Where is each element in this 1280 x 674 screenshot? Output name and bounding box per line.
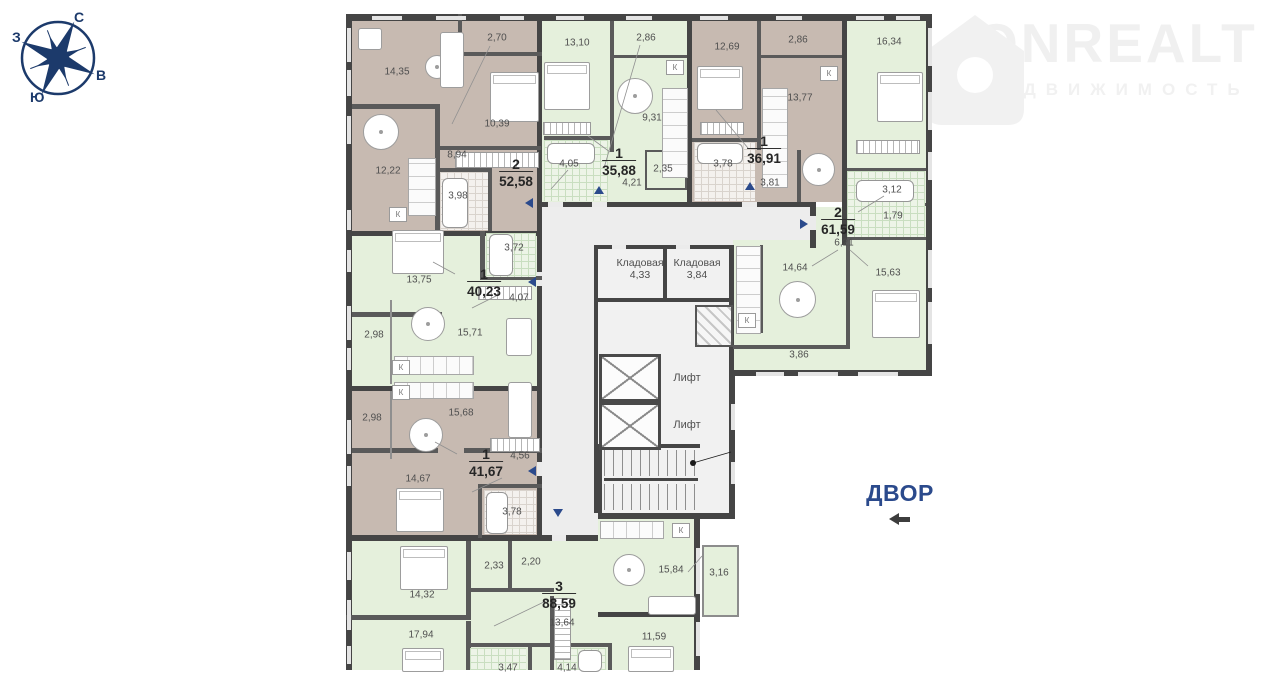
apartment-rooms-count: 1 — [469, 447, 503, 462]
bed-icon — [628, 646, 674, 672]
region-balcony-316 — [702, 545, 739, 617]
window — [347, 28, 351, 62]
window — [928, 92, 932, 130]
door-gap — [592, 202, 607, 207]
compass-west-label: З — [12, 29, 21, 45]
apartment-rooms-count: 2 — [499, 157, 533, 172]
kitchen-box-marker: К — [738, 313, 756, 328]
window — [347, 70, 351, 96]
room-area-label: 2,33 — [484, 561, 503, 572]
storage-label: Кладовая 4,33 — [616, 257, 663, 281]
window — [556, 16, 584, 20]
room-area-label: 13,75 — [406, 275, 431, 286]
storage-name: Кладовая — [673, 257, 720, 269]
kitchen-counter — [600, 521, 664, 539]
bed-icon — [877, 72, 923, 122]
room-area-label: 3,16 — [709, 568, 728, 579]
apartment-total-area: 35,88 — [602, 163, 636, 179]
sofa-icon — [440, 32, 464, 88]
room-area-label: 13,10 — [564, 38, 589, 49]
room-area-label: 4,56 — [510, 451, 529, 462]
bed-icon — [400, 546, 448, 590]
room-area-label: 3,78 — [713, 159, 732, 170]
elevator-shaft — [599, 402, 661, 450]
brand-house-icon — [920, 13, 1030, 133]
window — [347, 600, 351, 630]
apartment-label: 1 35,88 — [602, 145, 636, 179]
compass-north-label: С — [74, 9, 84, 25]
window — [347, 116, 351, 144]
window — [372, 16, 402, 20]
wall-core-bottom — [598, 513, 735, 519]
courtyard-label-block: ДВОР — [862, 480, 938, 531]
wall-inner — [757, 21, 761, 150]
bathtub-icon — [442, 178, 468, 228]
staircase — [604, 484, 698, 510]
window — [347, 420, 351, 454]
window — [858, 372, 898, 376]
room-area-label: 4,21 — [622, 178, 641, 189]
compass-east-label: В — [96, 67, 106, 83]
wall-inner — [488, 168, 492, 231]
room-area-label: 16,34 — [876, 37, 901, 48]
courtyard-direction-arrow-icon — [889, 513, 911, 526]
window — [776, 16, 802, 20]
wall-core-east — [729, 376, 735, 516]
wall-storage-divider — [663, 245, 667, 302]
window — [626, 16, 652, 20]
wall-corridor-top — [542, 202, 814, 207]
door-arrow-icon — [525, 198, 533, 208]
door-arrow-icon — [528, 277, 536, 287]
kitchen-box-marker: К — [820, 66, 838, 81]
bed-icon — [490, 72, 539, 122]
kitchen-box-marker: К — [672, 523, 690, 538]
door-gap — [676, 245, 690, 249]
apartment-total-area: 88,59 — [542, 596, 576, 612]
room-area-label: 9,31 — [642, 113, 661, 124]
window — [856, 16, 884, 20]
door-arrow-icon — [553, 509, 563, 517]
window — [347, 646, 351, 664]
wall-inner — [847, 237, 926, 240]
room-area-label: 14,64 — [782, 263, 807, 274]
door-gap — [548, 202, 563, 207]
sofa-icon — [506, 318, 532, 356]
room-area-label: 15,68 — [448, 408, 473, 419]
door-arrow-icon — [745, 182, 755, 190]
kitchen-box-marker: К — [392, 360, 410, 375]
courtyard-label: ДВОР — [862, 480, 938, 507]
window — [696, 622, 700, 656]
door-gap — [742, 202, 757, 207]
wall-inner — [608, 647, 612, 670]
balcony-rail — [390, 391, 392, 459]
apartment-rooms-count: 3 — [542, 579, 576, 594]
stairs-direction-dot — [690, 460, 696, 466]
room-area-label: 14,32 — [409, 590, 434, 601]
kitchen-counter — [408, 158, 436, 216]
bed-icon — [697, 66, 743, 110]
elevator-label: Лифт — [673, 419, 700, 431]
room-area-label: 12,69 — [714, 42, 739, 53]
compass-rose: С В Ю З — [8, 4, 108, 108]
bed-icon — [872, 290, 920, 338]
apartment-label: 1 36,91 — [747, 133, 781, 167]
wardrobe — [856, 140, 920, 154]
room-area-label: 6,21 — [834, 238, 853, 249]
sofa-icon — [648, 596, 696, 615]
storage-area: 4,33 — [616, 269, 663, 281]
armchair-icon — [358, 28, 382, 50]
window — [347, 466, 351, 486]
window — [696, 548, 700, 594]
staircase — [604, 450, 698, 476]
apartment-rooms-count: 2 — [821, 205, 855, 220]
room-area-label: 11,59 — [642, 632, 666, 643]
room-area-label: 14,35 — [384, 67, 409, 78]
window — [347, 210, 351, 230]
room-area-label: 3,81 — [760, 178, 779, 189]
storage-label: Кладовая 3,84 — [673, 257, 720, 281]
elevator-shaft — [599, 354, 661, 402]
room-area-label: 13,77 — [787, 93, 812, 104]
door-gap — [612, 245, 626, 249]
room-area-label: 2,86 — [636, 33, 655, 44]
apartment-label: 1 40,23 — [467, 266, 501, 300]
room-area-label: 3,72 — [504, 243, 523, 254]
kitchen-box-marker: К — [389, 207, 407, 222]
elevator-label: Лифт — [673, 372, 700, 384]
window — [731, 462, 735, 484]
room-area-label: 13,64 — [549, 618, 574, 629]
window — [500, 16, 524, 20]
apartment-label: 2 61,59 — [821, 204, 855, 238]
window — [347, 306, 351, 340]
wall-inner — [458, 52, 542, 56]
room-area-label: 1,79 — [883, 211, 902, 222]
apartment-total-area: 40,23 — [467, 284, 501, 300]
apartment-label: 3 88,59 — [542, 578, 576, 612]
wall-inner — [610, 21, 614, 152]
room-area-label: 15,63 — [875, 268, 900, 279]
room-area-label: 4,05 — [559, 159, 578, 170]
room-area-label: 3,98 — [448, 191, 467, 202]
stairs-landing-divider — [604, 478, 698, 481]
bed-icon — [544, 62, 590, 110]
wall-inner — [797, 150, 801, 202]
kitchen-box-marker: К — [392, 385, 410, 400]
wall-inner — [846, 240, 850, 347]
apartment-label: 1 41,67 — [469, 446, 503, 480]
room-area-label: 2,98 — [362, 413, 381, 424]
wall-inner — [466, 588, 554, 592]
window — [928, 28, 932, 66]
apartment-label: 2 52,58 — [499, 156, 533, 190]
window — [928, 152, 932, 180]
door-arrow-icon — [594, 186, 604, 194]
storage-area: 3,84 — [673, 269, 720, 281]
storage-name: Кладовая — [616, 257, 663, 269]
door-gap — [552, 535, 566, 541]
wall-inner — [614, 55, 687, 58]
bathtub-icon — [578, 650, 602, 672]
wall-inner — [352, 104, 438, 109]
apartment-total-area: 41,67 — [469, 464, 503, 480]
window — [731, 404, 735, 430]
shaft-hatched — [695, 305, 733, 347]
wall-inner — [478, 484, 542, 488]
window — [798, 372, 838, 376]
room-area-label: 15,71 — [457, 328, 482, 339]
room-area-label: 3,47 — [498, 663, 517, 674]
window — [700, 16, 728, 20]
room-area-label: 2,20 — [521, 557, 540, 568]
apartment-rooms-count: 1 — [467, 267, 501, 282]
wall-inner — [528, 647, 532, 670]
room-area-label: 8,94 — [447, 150, 466, 161]
apartment-total-area: 36,91 — [747, 151, 781, 167]
room-area-label: 3,12 — [882, 185, 901, 196]
room-area-label: 17,94 — [408, 630, 433, 641]
window — [436, 16, 466, 20]
brand-watermark: ONREALT НЕДВИЖИМОСТЬ — [930, 8, 1258, 100]
wall-inner — [733, 345, 850, 349]
apartment-total-area: 52,58 — [499, 174, 533, 190]
room-area-label: 3,78 — [502, 507, 521, 518]
wardrobe — [700, 122, 744, 135]
dining-table-icon — [613, 554, 645, 586]
window — [347, 348, 351, 370]
dining-table-icon — [363, 114, 399, 150]
room-area-label: 15,84 — [658, 565, 683, 576]
door-gap — [810, 216, 816, 230]
room-area-label: 3,86 — [789, 350, 808, 361]
door-arrow-icon — [528, 466, 536, 476]
bed-icon — [392, 230, 444, 274]
dining-table-icon — [409, 418, 443, 452]
bed-icon — [396, 488, 444, 532]
dining-table-icon — [411, 307, 445, 341]
apartment-total-area: 61,59 — [821, 222, 855, 238]
room-area-label: 10,39 — [484, 119, 509, 130]
apartment-rooms-count: 1 — [747, 134, 781, 149]
wall-inner — [466, 541, 471, 619]
stairs-wall — [598, 448, 602, 514]
room-area-label: 14,67 — [405, 474, 430, 485]
room-area-label: 2,70 — [487, 33, 506, 44]
door-gap — [537, 462, 542, 476]
wall-inner — [761, 55, 842, 58]
dining-table-icon — [779, 281, 816, 318]
room-area-label: 2,86 — [788, 35, 807, 46]
window — [896, 16, 920, 20]
wall-inner — [470, 643, 612, 647]
window — [347, 250, 351, 272]
sofa-icon — [508, 382, 532, 438]
window — [928, 302, 932, 344]
door-arrow-icon — [800, 219, 808, 229]
compass-south-label: Ю — [30, 89, 44, 105]
wall-inner — [508, 541, 512, 589]
room-area-label: 12,22 — [375, 166, 400, 177]
room-area-label: 2,98 — [364, 330, 383, 341]
room-area-label: 4,07 — [509, 293, 528, 304]
kitchen-box-marker: К — [666, 60, 684, 75]
wall-inner — [346, 615, 471, 620]
apartment-rooms-count: 1 — [602, 146, 636, 161]
region-corridor — [542, 207, 598, 541]
room-area-label: 4,14 — [557, 663, 576, 674]
window — [928, 250, 932, 288]
bed-icon — [402, 648, 444, 672]
window — [756, 372, 784, 376]
dining-table-icon — [802, 153, 835, 186]
wardrobe — [543, 122, 591, 135]
floorplan-page: { "brand": {"name": "ONREALT", "subtitle… — [0, 0, 1280, 670]
dining-table-icon — [617, 78, 653, 114]
window — [347, 552, 351, 580]
wall-inner — [478, 488, 482, 538]
room-area-label: 2,35 — [653, 164, 672, 175]
